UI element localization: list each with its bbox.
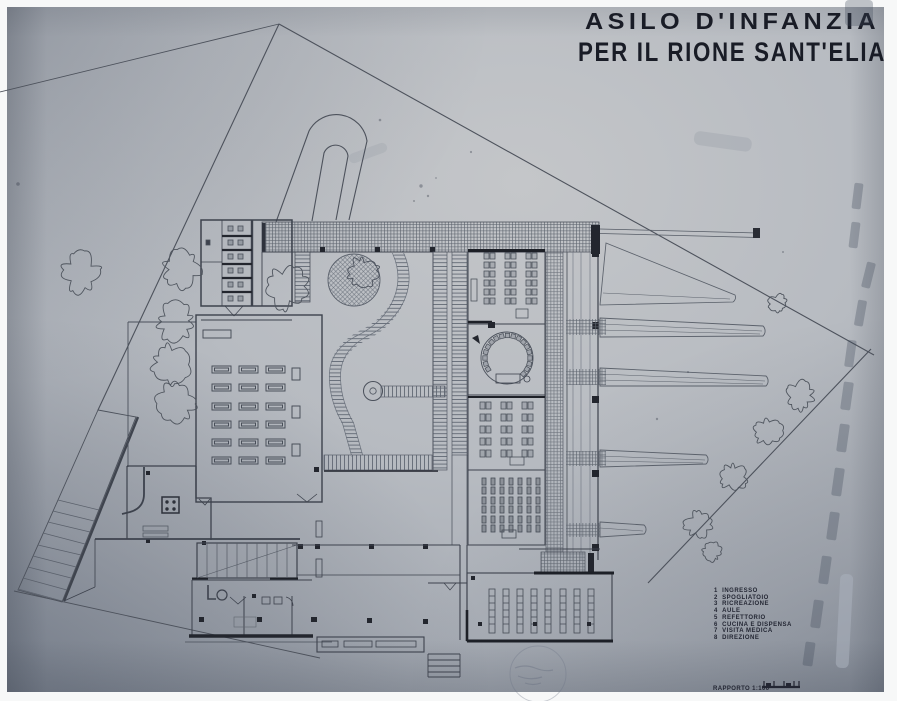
svg-text:RAPPORTO 1:100: RAPPORTO 1:100 bbox=[713, 686, 770, 692]
svg-text:4 AULE: 4 AULE bbox=[714, 608, 741, 614]
svg-text:PER IL RIONE SANT'ELIA: PER IL RIONE SANT'ELIA bbox=[578, 37, 886, 67]
svg-text:7 VISITA MEDICA: 7 VISITA MEDICA bbox=[714, 628, 773, 634]
svg-text:1 INGRESSO: 1 INGRESSO bbox=[714, 588, 758, 594]
svg-text:3 RICREAZIONE: 3 RICREAZIONE bbox=[714, 601, 769, 607]
svg-text:ASILO D'INFANZIA: ASILO D'INFANZIA bbox=[585, 8, 880, 34]
svg-text:8 DIREZIONE: 8 DIREZIONE bbox=[714, 635, 759, 641]
svg-text:5 REFETTORIO: 5 REFETTORIO bbox=[714, 615, 766, 621]
